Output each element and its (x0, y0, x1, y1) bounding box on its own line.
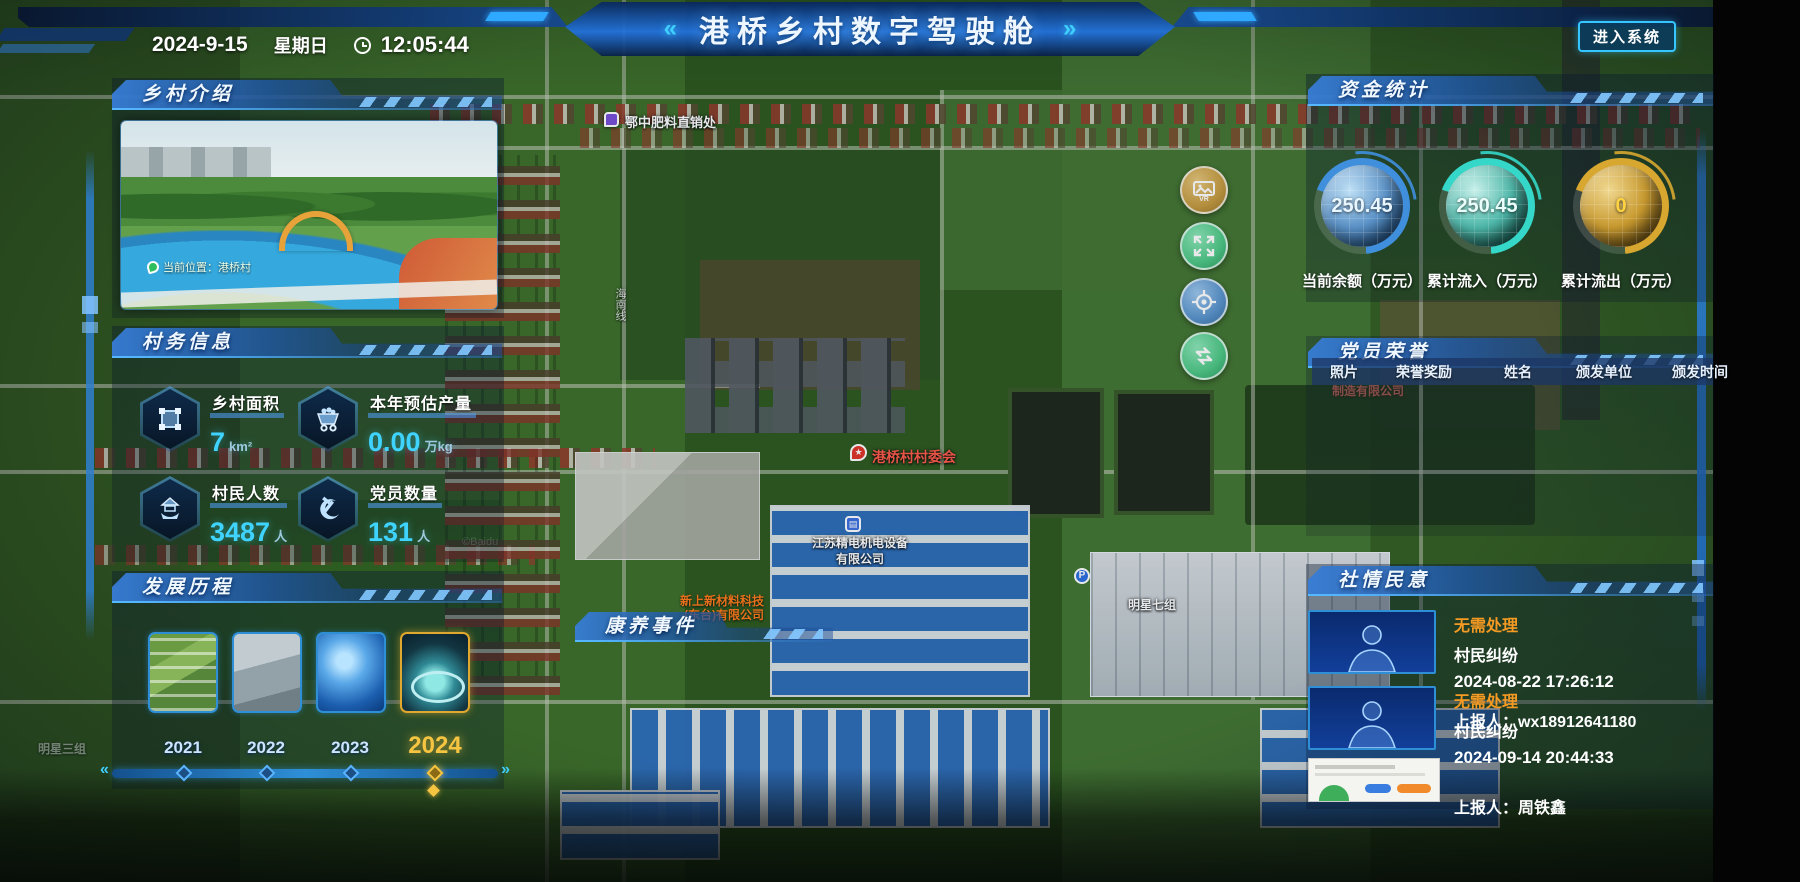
gauge-ring (1439, 158, 1535, 254)
stat-value: 0.00 (368, 427, 421, 457)
expand-icon (1192, 234, 1216, 258)
map-label-fertilizer: 鄂中肥料直销处 (625, 112, 716, 131)
opinion-screenshot-thumb[interactable] (1308, 758, 1440, 802)
stat-label: 村民人数 (210, 480, 287, 508)
year-2024-active[interactable]: 2024 (395, 732, 475, 760)
honors-col-name: 姓名 (1504, 362, 1532, 382)
current-date: 2024-9-15 (152, 33, 248, 57)
stat-villagers: 村民人数 3487人 (140, 476, 287, 548)
opinion-panel-title: 社情民意 (1338, 569, 1430, 593)
opinion-category: 村民纠纷 (1454, 642, 1636, 666)
timeline-slider[interactable]: « » (112, 769, 498, 778)
opinion-photo[interactable] (1308, 610, 1436, 674)
title-left-chevrons: « (664, 15, 677, 43)
stat-value: 3487 (210, 517, 270, 547)
thumb-blue-button (1365, 784, 1391, 793)
map-label-group7: 明星七组 (1128, 596, 1176, 613)
stat-unit: 人 (417, 529, 430, 544)
gauge-sphere (1321, 165, 1403, 247)
minecart-icon (312, 403, 344, 435)
stat-party-members: 党员数量 131人 (298, 476, 442, 548)
opinion-status: 无需处理 (1454, 612, 1636, 636)
stat-unit: 人 (274, 529, 287, 544)
corner-decor (0, 44, 95, 53)
header-left-wing (18, 7, 568, 27)
right-black-band (1713, 0, 1800, 882)
honors-col-photo: 照片 (1330, 362, 1358, 382)
boat-icon (154, 493, 186, 525)
gauge-value: 250.45 (1439, 158, 1535, 254)
info-panel-title: 村务信息 (142, 331, 234, 355)
timeline-prev-arrow[interactable]: « (100, 761, 109, 779)
opinion-status: 无需处理 (1454, 688, 1614, 712)
gauge-current-balance: 250.45 (1314, 158, 1410, 254)
header-hatch-decor (359, 345, 492, 355)
title-bar: « 港桥乡村数字驾驶舱 » (565, 2, 1175, 56)
honors-col-issuer: 颁发单位 (1576, 362, 1632, 382)
thumb-line-decor (1315, 765, 1395, 769)
year-2023[interactable]: 2023 (310, 738, 390, 758)
header-hatch-decor (359, 97, 492, 107)
header-hatch-decor (359, 590, 492, 600)
opinion-time: 2024-09-14 20:44:33 (1454, 748, 1614, 768)
header-hatch-decor (1565, 583, 1703, 593)
honors-col-award: 荣誉奖励 (1396, 362, 1452, 382)
map-pin-parking[interactable]: P (1074, 568, 1090, 584)
map-factory-sheds (560, 790, 720, 860)
stat-value: 131 (368, 517, 413, 547)
map-label-company1-line2: 有限公司 (800, 550, 920, 567)
timeline-thumb-2024[interactable] (400, 632, 470, 713)
development-panel-title: 发展历程 (142, 576, 234, 600)
health-events-title: 康养事件 (605, 615, 697, 639)
locate-target-icon (1191, 289, 1217, 315)
page-title: 港桥乡村数字驾驶舱 (699, 7, 1041, 51)
corner-decor (0, 28, 135, 41)
stat-value: 7 (210, 427, 225, 457)
honors-col-date: 颁发时间 (1672, 362, 1728, 382)
vr-panorama-icon: VR (1191, 177, 1217, 203)
stat-hex-frame (298, 476, 358, 542)
map-label-road: 海南线 (612, 288, 628, 321)
gauge-ring (1573, 158, 1669, 254)
stat-hex-frame (140, 386, 200, 452)
gauge-sphere (1580, 165, 1662, 247)
timeline-thumb-2022[interactable] (232, 632, 302, 713)
clock-icon (354, 37, 371, 54)
header-hatch-decor (756, 629, 823, 639)
honors-table-header: 照片 荣誉奖励 姓名 颁发单位 颁发时间 (1312, 358, 1713, 385)
map-switch-button[interactable] (1180, 332, 1228, 380)
map-label-group3: 明星三组 (38, 740, 86, 757)
intro-panel-title: 乡村介绍 (142, 83, 234, 107)
stat-village-area: 乡村面积 7km² (140, 386, 284, 458)
gauge-total-inflow: 250.45 (1439, 158, 1535, 254)
person-wireframe-icon (1337, 696, 1407, 748)
map-label-company1-line1: 江苏精电机电设备 (800, 534, 920, 551)
svg-text:VR: VR (1199, 196, 1209, 203)
thumb-green-circle (1319, 785, 1349, 802)
opinion-reporter: 上报人：周铁鑫 (1454, 794, 1614, 818)
map-pin-company[interactable]: ▤ (845, 516, 861, 532)
swap-arrows-icon (1191, 343, 1217, 369)
datetime-group: 2024-9-15 星期日 12:05:44 (152, 32, 469, 58)
year-2022[interactable]: 2022 (226, 738, 306, 758)
stat-hex-frame (140, 476, 200, 542)
current-weekday: 星期日 (274, 32, 328, 58)
geo-pin-icon (146, 260, 161, 275)
map-pond (1008, 388, 1104, 518)
dashboard-root: 鄂中肥料直销处 海南线 ★ 港桥村村委会 ▤ 江苏精电机电设备 有限公司 新上新… (0, 0, 1800, 882)
stat-label: 本年预估产量 (368, 390, 476, 418)
enter-system-button[interactable]: 进入系统 (1578, 21, 1676, 52)
header-left-accent (485, 12, 549, 21)
person-wireframe-icon (1337, 620, 1407, 672)
current-time: 12:05:44 (381, 32, 469, 58)
opinion-photo[interactable] (1308, 686, 1436, 750)
map-locate-button[interactable] (1180, 278, 1228, 326)
map-pond (1114, 390, 1214, 515)
thumb-orange-button (1397, 784, 1431, 793)
left-frame-notch (82, 322, 98, 333)
gauge-value: 0 (1573, 158, 1669, 254)
area-icon (155, 404, 185, 434)
stat-hex-frame (298, 386, 358, 452)
gauge-sphere (1446, 165, 1528, 247)
map-grey-houses (685, 338, 905, 433)
left-frame-notch (82, 296, 98, 314)
header-hatch-decor (1565, 93, 1703, 103)
gauge-ring (1314, 158, 1410, 254)
title-right-chevrons: » (1063, 15, 1076, 43)
timeline-thumb-2023[interactable] (316, 632, 386, 713)
timeline-thumb-2021[interactable] (148, 632, 218, 713)
gauge-total-outflow: 0 (1573, 158, 1669, 254)
map-fullscreen-button[interactable] (1180, 222, 1228, 270)
map-pin-fertilizer[interactable] (604, 112, 619, 127)
stat-unit: km² (229, 439, 252, 454)
year-2021[interactable]: 2021 (143, 738, 223, 758)
map-label-committee: 港桥村村委会 (872, 447, 956, 467)
photo-badge-text: 当前位置：港桥村 (163, 259, 251, 275)
stat-unit: 万kg (425, 439, 453, 454)
timeline-next-arrow[interactable]: » (501, 761, 510, 779)
map-pin-committee[interactable]: ★ (850, 444, 867, 461)
opinion-category: 村民纠纷 (1454, 718, 1614, 742)
map-vr-button[interactable]: VR (1180, 166, 1228, 214)
stat-estimated-output: 本年预估产量 0.00万kg (298, 386, 476, 458)
map-white-buildings (575, 452, 760, 560)
left-frame (86, 150, 94, 640)
gauge-value: 250.45 (1314, 158, 1410, 254)
thumb-line-decor (1315, 773, 1425, 776)
stat-label: 乡村面积 (210, 390, 284, 418)
funds-panel-title: 资金统计 (1338, 79, 1430, 103)
header-right-accent (1193, 12, 1257, 21)
photo-location-badge: 当前位置：港桥村 (147, 259, 251, 275)
party-emblem-icon (313, 494, 343, 524)
gauge-label-outflow: 累计流出（万元） (1541, 270, 1701, 291)
stat-label: 党员数量 (368, 480, 442, 508)
village-photo: 当前位置：港桥村 (120, 120, 498, 310)
photo-red-plaza (399, 238, 497, 309)
